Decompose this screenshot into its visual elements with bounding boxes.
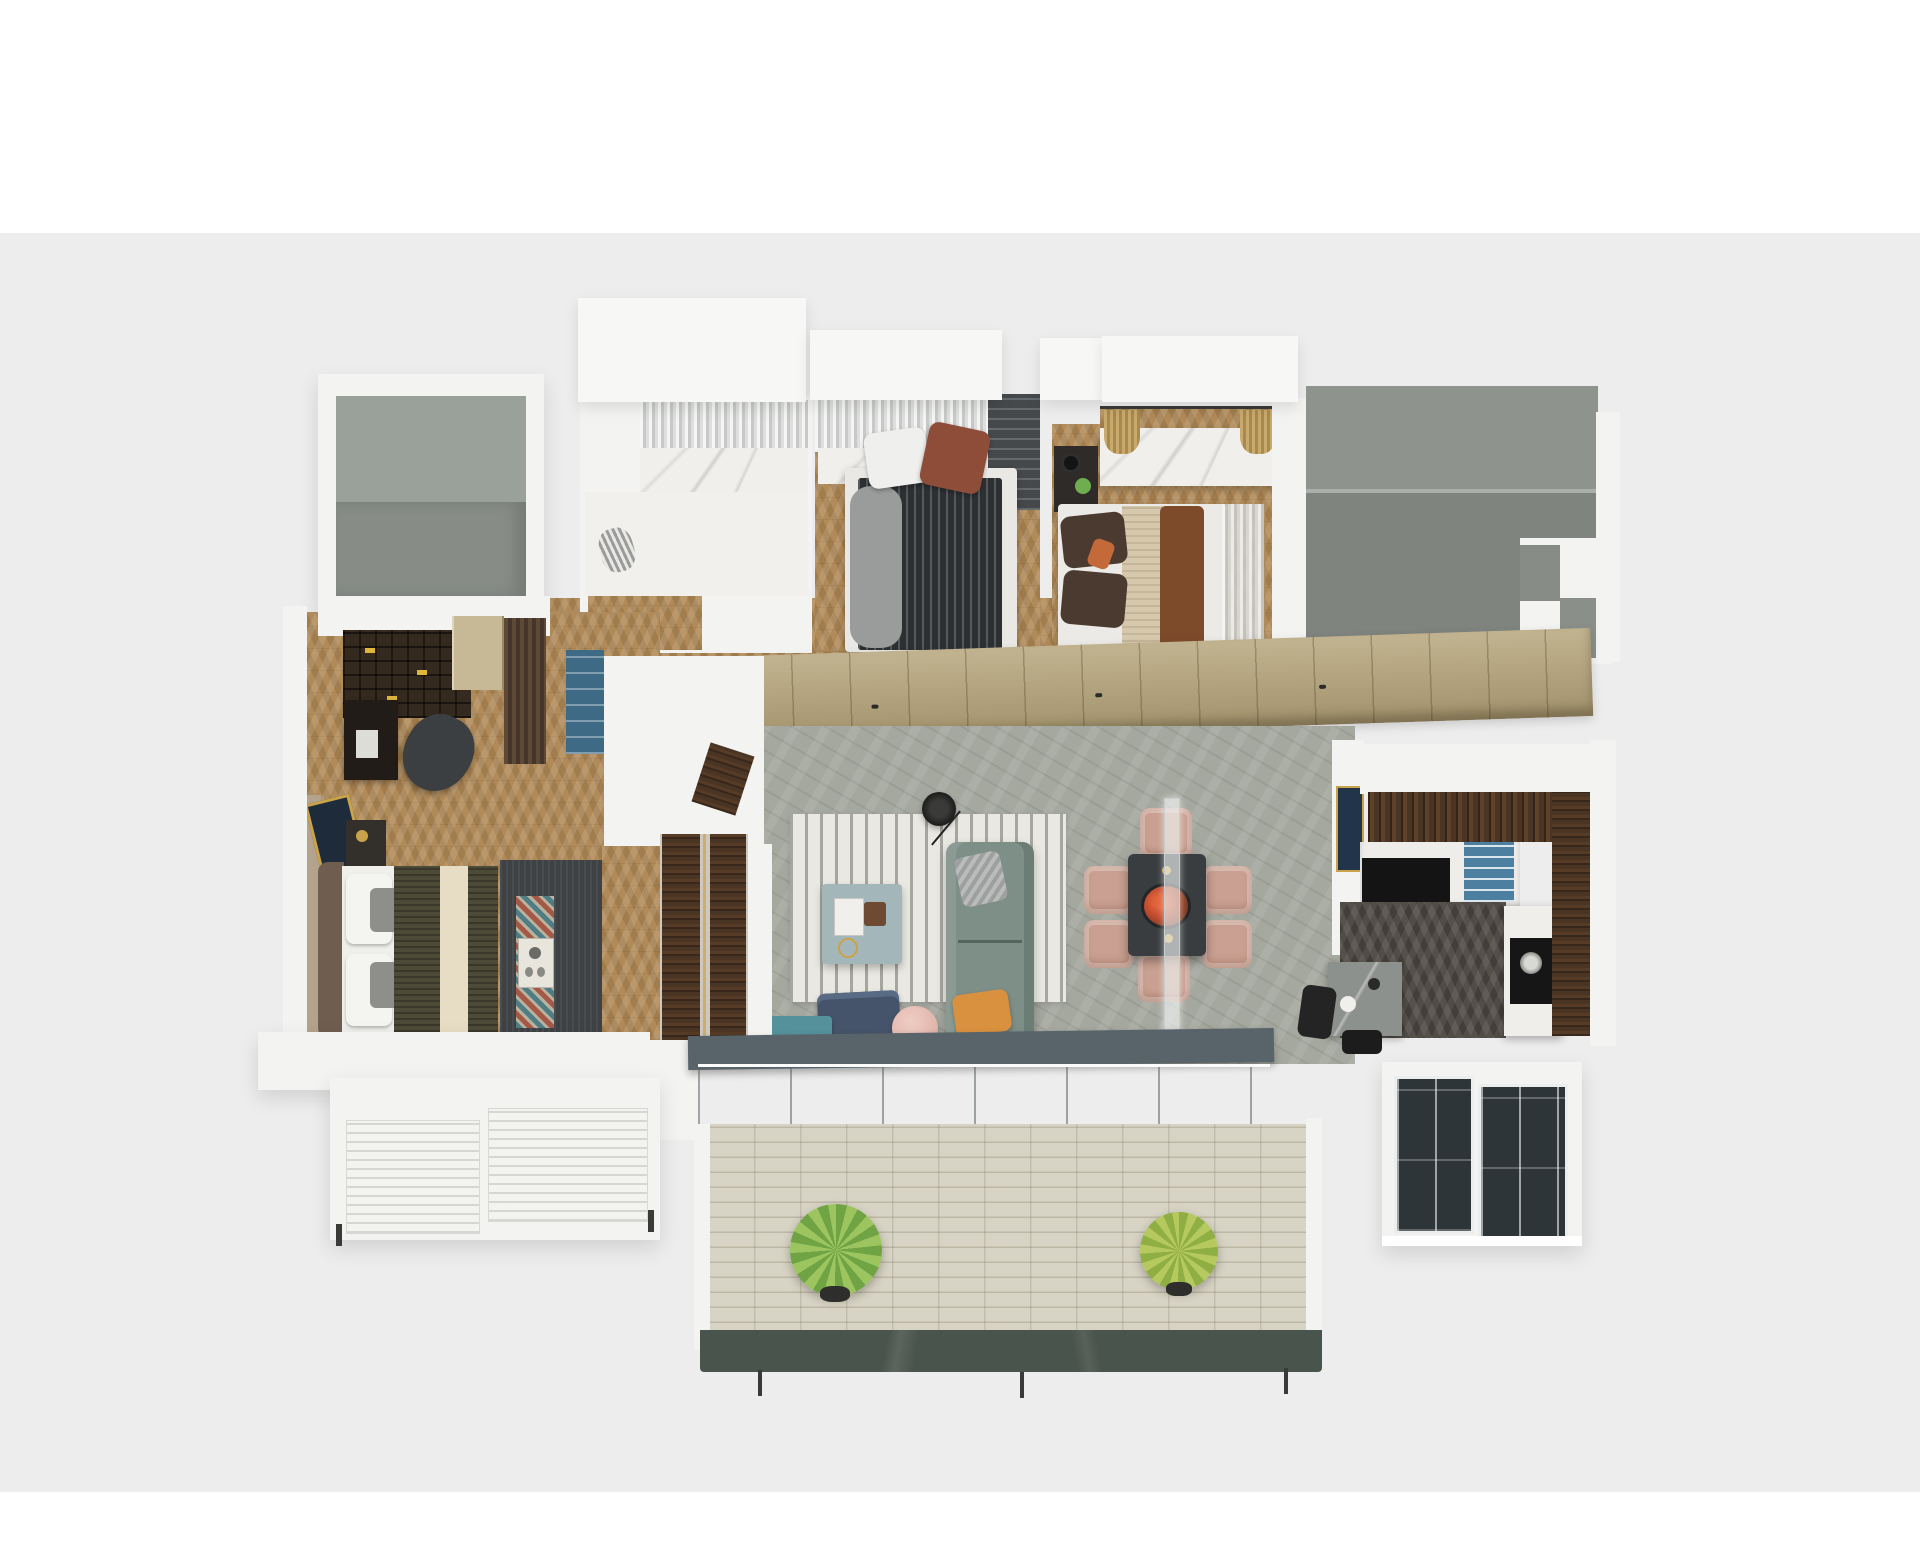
- kitchen-bistro-table: [1328, 962, 1402, 1036]
- nightstand-gold-lamp: [356, 830, 368, 842]
- bedroom3-curtain: [1222, 504, 1264, 656]
- railing-post-1: [758, 1370, 762, 1396]
- sofa: [946, 842, 1034, 1046]
- kitchen-top-wall: [1360, 744, 1592, 794]
- kitchen-right-wall: [1552, 792, 1590, 1036]
- bedroom-2: [815, 394, 1040, 654]
- roof-slab-sliver: [1040, 338, 1102, 400]
- bathroom-marble-shower: [640, 448, 808, 492]
- master-left-outer-wall: [283, 606, 307, 1048]
- kitchen-blue-shelves: [1464, 842, 1514, 902]
- bedroom3-pillow-brown-2: [1060, 569, 1128, 628]
- roof-slab-bedroom2: [810, 330, 1002, 400]
- kitchen-balcony-sill: [1382, 1236, 1582, 1246]
- coffee-table: [822, 884, 902, 964]
- terrace-floor-lower: [336, 502, 526, 596]
- dining-chair-right-2: [1202, 920, 1252, 968]
- master-rug-dark: [500, 860, 602, 1038]
- bedroom2-gray-throw: [850, 486, 902, 648]
- sofa-pillow-silver: [953, 850, 1008, 908]
- tray-item-3: [537, 967, 545, 977]
- bedroom3-brown-throw: [1160, 506, 1204, 656]
- void-terrace-right: [1306, 386, 1622, 666]
- kitchen-chair: [1297, 984, 1338, 1040]
- book-accent-1: [365, 648, 375, 653]
- void-upper: [1306, 386, 1598, 492]
- living-left-wall: [748, 844, 772, 1056]
- balcony-plant-right: [1140, 1212, 1218, 1290]
- kitchen-counter: [1368, 792, 1576, 842]
- tray-item-2: [525, 967, 533, 977]
- book-accent-2: [417, 670, 427, 675]
- tray-item-1: [529, 947, 541, 959]
- blanket-olive-2: [468, 866, 498, 1038]
- dining-chair-right-1: [1202, 866, 1252, 914]
- desk-paper: [356, 730, 378, 758]
- blanket-cream: [440, 866, 468, 1038]
- bistro-bowl-1: [1340, 996, 1356, 1012]
- kitchen-balcony-glass-1: [1394, 1076, 1474, 1234]
- dining-chair-left-1: [1084, 866, 1134, 914]
- coffee-table-tray: [838, 938, 858, 958]
- kitchen-stool: [1342, 1030, 1382, 1054]
- master-balcony-post-1: [336, 1224, 342, 1246]
- bedroom2-pillow-rust: [918, 420, 992, 495]
- island-pot: [1520, 952, 1542, 974]
- railing-post-3: [1284, 1368, 1288, 1394]
- balcony-kitchen: [1382, 1062, 1582, 1246]
- walnut-strip-1: [662, 834, 700, 1046]
- walnut-strip-2: [710, 834, 746, 1046]
- dining-chair-left-2: [1084, 920, 1134, 968]
- kitchen-balcony-glass-2: [1478, 1084, 1568, 1242]
- master-bed: [318, 862, 500, 1038]
- wardrobe-handle-2: [872, 704, 879, 708]
- wardrobe-handle-3: [1095, 693, 1102, 697]
- master-balcony-post-2: [648, 1210, 654, 1232]
- wardrobe-handle-4: [1319, 684, 1326, 688]
- study-desk: [344, 700, 398, 780]
- glass-partition: [1164, 798, 1180, 1040]
- sofa-pillow-orange: [951, 988, 1012, 1037]
- balcony-master: [330, 1078, 660, 1240]
- study-tan-closet: [452, 616, 504, 690]
- terrace-floor-upper: [336, 396, 526, 502]
- bed-headboard: [318, 862, 344, 1038]
- breakfast-tray: [518, 938, 554, 988]
- coffee-table-box: [864, 902, 886, 926]
- coffee-table-book: [834, 898, 864, 936]
- kitchen-black-cabinet: [1362, 858, 1450, 906]
- plant-right-pot: [1166, 1282, 1192, 1296]
- master-floor-strip: [602, 846, 660, 1040]
- void-step-1: [1520, 545, 1560, 601]
- master-walnut-wardrobe: [660, 834, 748, 1046]
- terrace-room: [318, 374, 544, 614]
- bistro-bowl-2: [1368, 978, 1380, 990]
- bathroom-curtain-wall: [640, 400, 808, 448]
- plant-left-pot: [820, 1286, 850, 1302]
- bedroom-3: [1052, 398, 1306, 658]
- bedroom3-right-wall: [1272, 398, 1306, 658]
- blanket-olive-1: [394, 866, 440, 1038]
- balcony-fascia: [700, 1330, 1322, 1372]
- dried-grass-tassel-right: [1240, 410, 1276, 454]
- roof-slab-bathroom: [578, 298, 806, 402]
- dried-grass-tassel-left: [1104, 410, 1140, 454]
- void-right-wall: [1596, 412, 1620, 662]
- walnut-gold-trim: [703, 834, 706, 1046]
- bedroom3-plant: [1075, 478, 1091, 494]
- master-balcony-slat-unit-1: [346, 1120, 480, 1234]
- railing-post-2: [1020, 1372, 1024, 1398]
- sofa-cushion-seam: [958, 940, 1022, 943]
- roof-slab-bedroom3: [1102, 336, 1298, 402]
- bedroom3-beige-blanket: [1122, 506, 1164, 656]
- master-balcony-slat-unit-2: [488, 1108, 648, 1222]
- blue-cabinet: [566, 650, 604, 754]
- study-brown-curtain: [504, 618, 546, 764]
- deck-left-wall: [694, 1124, 710, 1350]
- balcony-glass-doors: [698, 1064, 1270, 1129]
- bedroom3-lamp: [1060, 452, 1082, 474]
- floor-plan-render: [0, 0, 1920, 1565]
- kitchen-outer-right-wall: [1590, 740, 1616, 1046]
- deck-right-wall: [1306, 1118, 1322, 1344]
- balcony-plant-left: [790, 1204, 882, 1296]
